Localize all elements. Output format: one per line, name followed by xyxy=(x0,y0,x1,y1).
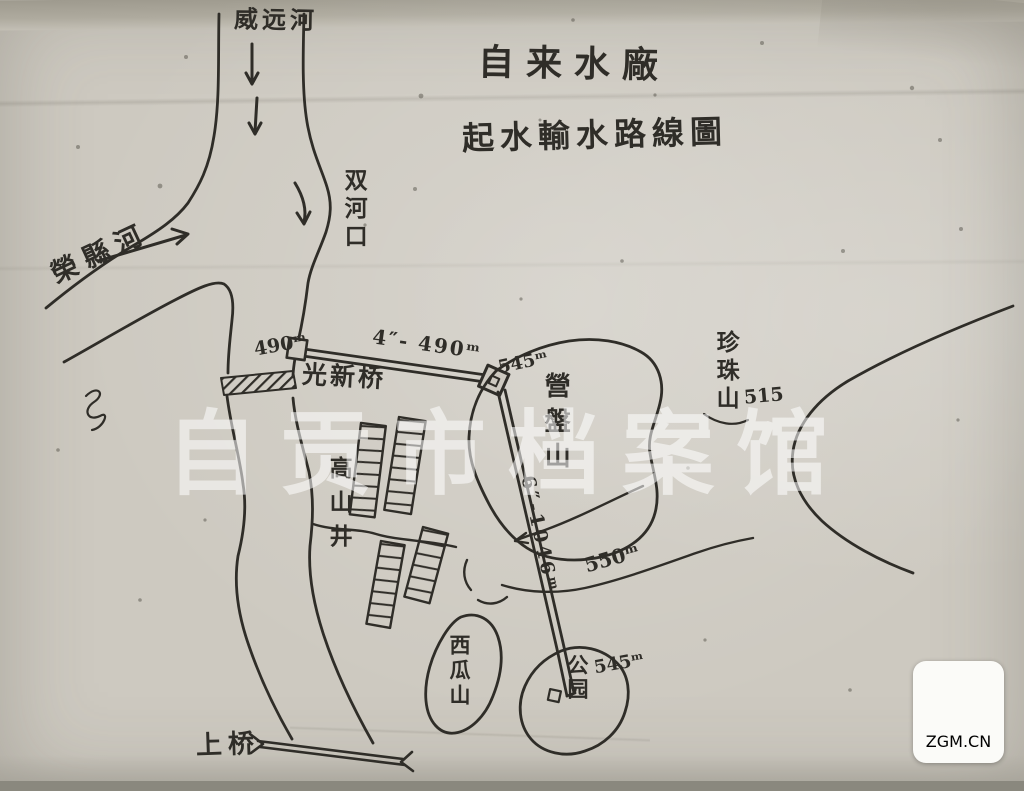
river-top-label: 威远河 xyxy=(234,6,318,33)
map-subtitle: 起水輸水路線圖 xyxy=(462,116,729,157)
river-weiyuan-banks xyxy=(46,14,330,377)
upper-bridge-label: 上桥 xyxy=(196,731,261,761)
park-label: 公园 xyxy=(566,654,588,702)
zgm-badge: ZGM.CN xyxy=(913,661,1004,763)
upper-bridge-symbol xyxy=(250,734,413,771)
zgm-tld: .CN xyxy=(963,732,991,751)
margin-scribble xyxy=(86,390,105,430)
confluence-label: 双河口 xyxy=(341,168,365,252)
xigua-mountain-label: 西瓜山 xyxy=(448,634,470,709)
zgm-logo-icon xyxy=(931,671,987,727)
zgm-brand: ZGM xyxy=(926,732,963,751)
river-rongxian-bank xyxy=(64,283,233,373)
map-title: 自来水廠 xyxy=(478,44,671,85)
archive-watermark: 自贡市档案馆 xyxy=(166,380,850,513)
zgm-badge-text: ZGM.CN xyxy=(913,732,1004,751)
archival-map-photo: 自来水廠 起水輸水路線圖 威远河 双河口 榮縣河 490ᵐ 4″- 490ᵐ 光… xyxy=(0,0,1024,791)
